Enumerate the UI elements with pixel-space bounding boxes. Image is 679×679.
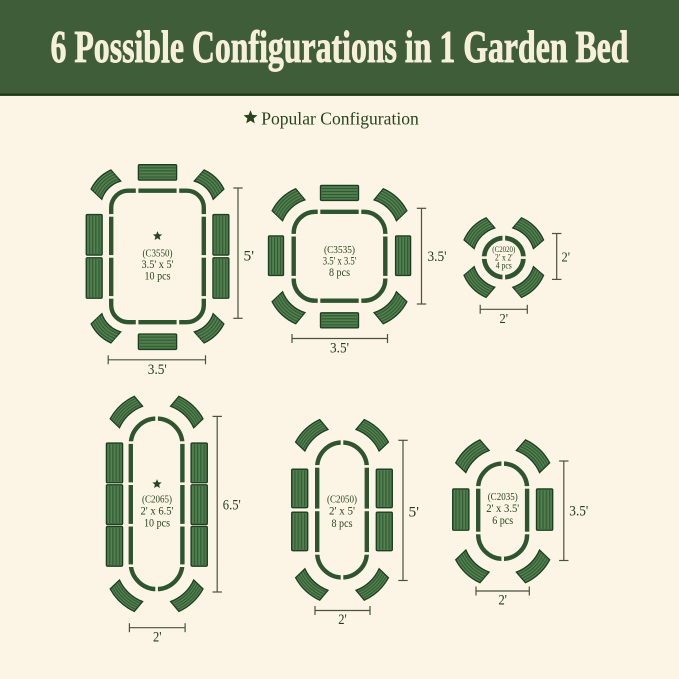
svg-text:6 pcs: 6 pcs [492,513,513,527]
svg-text:3.5': 3.5' [569,504,588,520]
svg-text:8 pcs: 8 pcs [329,265,350,279]
svg-text:2': 2' [498,593,507,609]
svg-text:10 pcs: 10 pcs [145,269,171,283]
svg-text:3.5': 3.5' [148,362,167,378]
svg-text:2': 2' [153,629,162,645]
svg-text:10 pcs: 10 pcs [144,515,170,529]
svg-text:2': 2' [562,250,571,265]
svg-text:6.5': 6.5' [223,498,241,514]
svg-text:2': 2' [338,612,347,628]
svg-text:Popular Configuration: Popular Configuration [261,109,419,129]
svg-text:5': 5' [244,248,255,264]
svg-text:8 pcs: 8 pcs [332,516,353,530]
svg-text:4 pcs: 4 pcs [496,261,512,271]
svg-text:2': 2' [500,311,509,326]
svg-text:3.5': 3.5' [428,249,447,265]
svg-text:6 Possible Configurations in 1: 6 Possible Configurations in 1 Garden Be… [51,22,629,72]
svg-text:3.5': 3.5' [330,340,349,356]
svg-text:5': 5' [409,505,420,521]
